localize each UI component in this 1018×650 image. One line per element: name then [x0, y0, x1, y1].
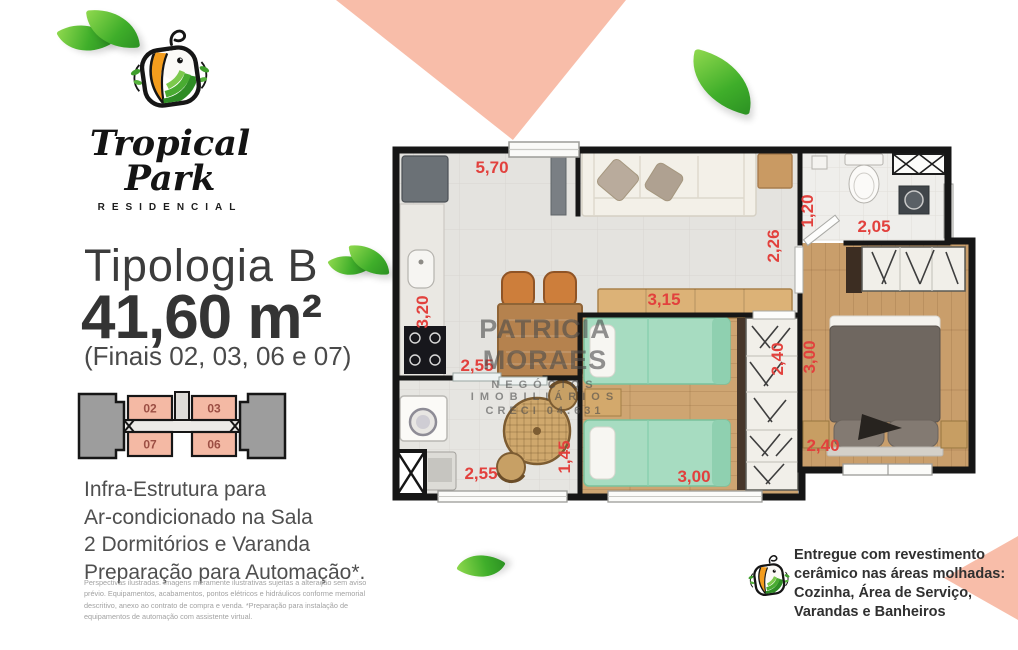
dim-bathroom-width: 2,05 — [857, 217, 890, 236]
salmon-triangle-top — [336, 0, 626, 140]
dim-kitchen-width: 2,55 — [460, 356, 493, 375]
dining-chair — [544, 272, 576, 308]
flyer-canvas: Tropical Park RESIDENCIAL Tipologia B 41… — [0, 0, 1018, 650]
dim-bedroom2-height: 2,40 — [768, 342, 787, 375]
feature-list: Infra-Estrutura para Ar-condicionado na … — [84, 476, 365, 587]
kitchen-sink — [408, 250, 434, 288]
headboard — [827, 447, 943, 456]
toilet-bowl — [849, 165, 879, 203]
pillow — [590, 427, 615, 479]
entry-cabinet — [551, 153, 566, 215]
toilet-tank — [845, 154, 883, 165]
double-bed-duvet — [830, 326, 940, 422]
dining-chair — [502, 272, 534, 308]
brand-name: Tropical Park — [60, 126, 280, 196]
dim-hall-height: 2,26 — [764, 229, 783, 262]
keyplan-core — [175, 392, 189, 422]
pillow — [888, 420, 938, 447]
typology-units-note: (Finais 02, 03, 06 e 07) — [84, 341, 351, 372]
bedroom2-door — [753, 311, 795, 319]
keyplan-unit-label: 06 — [207, 438, 221, 452]
wardrobe-side — [737, 318, 746, 490]
dim-living-width: 3,15 — [647, 290, 680, 309]
kitchen-furniture — [400, 156, 448, 376]
keyplan-unit-label: 02 — [143, 402, 157, 416]
dim-balcony-height: 1,45 — [555, 440, 574, 473]
floor-plan: 5,70 3,20 2,55 3,15 2,26 1,20 2,05 2,55 … — [385, 136, 985, 512]
pillow — [590, 325, 615, 377]
laundry-basin — [428, 458, 452, 482]
dining-table — [498, 304, 582, 376]
closet-cabinet — [846, 247, 862, 293]
toucan-badge-icon — [746, 552, 792, 602]
brand-logo: Tropical Park RESIDENCIAL — [60, 24, 280, 213]
building-key-plan: 02 03 07 06 — [76, 384, 288, 468]
faucet — [419, 260, 424, 265]
nightstand — [585, 389, 621, 416]
toucan-logo-icon — [126, 24, 214, 119]
dim-kitchen-height: 3,20 — [413, 295, 432, 328]
fridge — [402, 156, 448, 202]
keyplan-corridor — [124, 420, 240, 432]
dim-bedroom2-width: 3,00 — [677, 467, 710, 486]
keyplan-unit-label: 03 — [207, 402, 221, 416]
table-center — [533, 427, 541, 435]
shower-grate — [893, 154, 945, 174]
stove — [404, 326, 446, 374]
leaf-decoration — [456, 543, 506, 589]
dim-balcony-width: 2,55 — [464, 464, 497, 483]
dim-master-height: 3,00 — [800, 340, 819, 373]
balcony-slider-pane — [499, 377, 547, 385]
keyplan-right-block — [240, 394, 285, 458]
master-door — [795, 247, 803, 293]
leaf-decoration — [683, 49, 762, 116]
keyplan-left-block — [79, 394, 124, 458]
bathroom-basin — [905, 191, 923, 209]
bathroom-shelf — [812, 156, 827, 169]
dim-kitchen-living-width: 5,70 — [475, 158, 508, 177]
legal-disclaimer: Perspectivas ilustradas. Imagens meramen… — [84, 577, 376, 622]
delivery-note: Entregue com revestimento cerâmico nas á… — [794, 546, 1009, 623]
washer-drum — [416, 415, 430, 429]
side-table — [758, 154, 792, 188]
nightstand — [941, 421, 967, 448]
bed-foot — [712, 420, 730, 486]
bed-foot — [712, 318, 730, 384]
dim-bathroom-height: 1,20 — [798, 194, 817, 227]
keyplan-unit-label: 07 — [143, 438, 157, 452]
brand-subtitle: RESIDENCIAL — [60, 202, 280, 213]
dim-master-width: 2,40 — [806, 436, 839, 455]
